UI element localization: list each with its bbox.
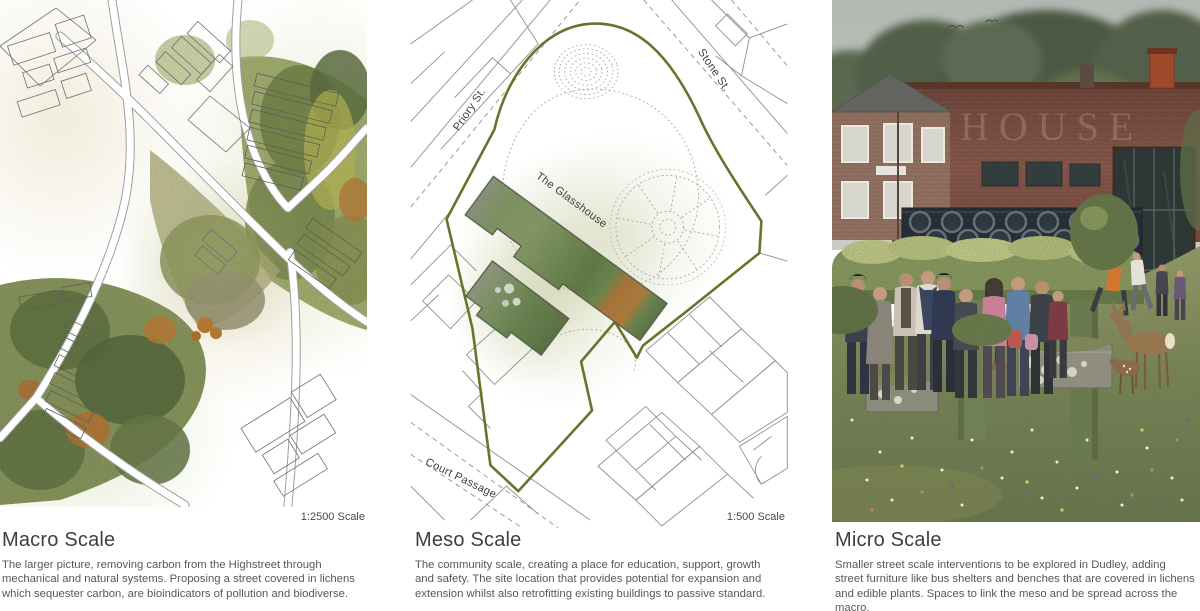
scale-label-meso: 1:500 Scale [410, 511, 785, 523]
amphitheatre-arcs [547, 39, 625, 105]
caption-meso: Meso Scale The community scale, creating… [415, 529, 777, 601]
ghost-sign-text: HOUSE [960, 104, 1143, 149]
scale-label-macro: 1:2500 Scale [0, 511, 365, 523]
photomontage-illustration: HOUSE [832, 0, 1200, 522]
street-label-priory: Priory St. [451, 86, 488, 133]
panel-description-micro: Smaller street scale interventions to be… [835, 558, 1197, 611]
chimney [1150, 52, 1174, 88]
backpack-pink [1025, 334, 1038, 350]
panel-description-macro: The larger picture, removing carbon from… [2, 558, 358, 601]
caption-micro: Micro Scale Smaller street scale interve… [835, 529, 1197, 611]
presentation-board: Priory St. Stone St. The Glasshouse Cour… [0, 0, 1200, 611]
street-label-court-passage: Court Passage [423, 456, 498, 501]
caption-macro: Macro Scale The larger picture, removing… [2, 529, 358, 601]
macro-map-illustration [0, 0, 367, 507]
panel-title-macro: Macro Scale [2, 529, 358, 552]
panel-description-meso: The community scale, creating a place fo… [415, 558, 777, 601]
panel-title-meso: Meso Scale [415, 529, 777, 552]
site-plan-illustration: Priory St. Stone St. The Glasshouse Cour… [410, 0, 790, 528]
panel-title-micro: Micro Scale [835, 529, 1197, 552]
street-label-stone: Stone St. [695, 47, 732, 94]
